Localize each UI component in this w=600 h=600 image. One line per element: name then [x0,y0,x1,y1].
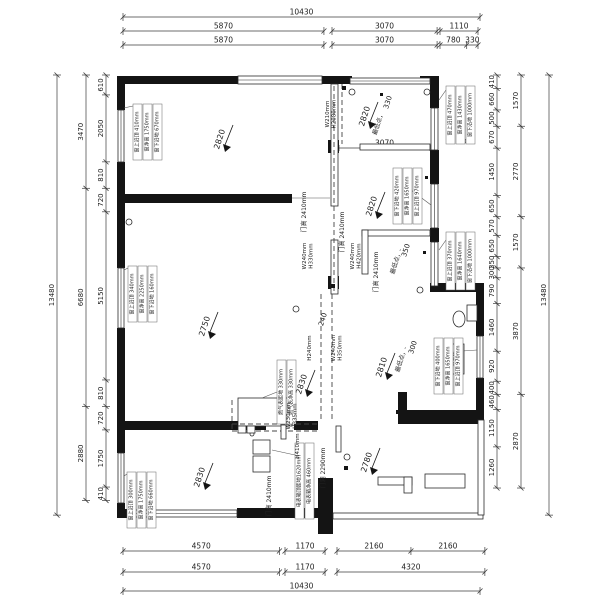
junction-dot-icon [331,284,335,288]
room-height-label: 300 [407,340,419,355]
dimension-label: 460 [488,395,496,408]
leader-line [124,268,128,270]
room-height-label: 最低点，- [393,346,409,373]
meter-box-icon [253,440,270,454]
wall-segment [430,150,439,184]
window [118,268,124,328]
door-height-label: 门高 2410mm [372,251,380,292]
thin-wall [333,513,483,519]
window [431,184,438,228]
window [238,76,322,84]
label-arrow-icon [223,144,231,152]
wall-segment [117,76,125,110]
wall-segment [117,328,125,453]
junction-dot-icon [396,410,400,414]
leader-line [439,90,446,100]
window-anno-left-bottom: 窗净高 1750mm [138,480,145,519]
dimension-label: 410 [97,487,105,500]
window-anno-right-room: 窗上沿顶 970mm [414,175,421,216]
window-anno-right-bottom: 窗上沿顶 970mm [455,345,462,386]
beam-size-note: W240mm [350,243,356,270]
toilet-bowl-icon [453,311,465,327]
beam-size-note: W210mm [325,101,331,128]
dimension-label: 670 [488,131,496,144]
window [431,242,438,286]
dimension-label: 570 [488,219,496,232]
door-height-label: 门高 2410mm [265,475,273,516]
dimension-label: 1450 [488,163,496,181]
beam-size-note: H335mm [293,403,299,428]
window-anno-right-mid: 窗净高 1640mm [457,241,464,280]
dimension-label: 1170 [295,563,314,572]
dimension-label: 1570 [512,92,520,110]
outlet-circle-icon [349,89,355,95]
thin-wall [360,144,430,150]
dimension-label: 650 [488,239,496,252]
window-anno-right-mid: 窗下沿地 1000mm [467,239,474,283]
beam-size-note: H240mm [307,335,313,360]
window-anno-left-mid: 窗净高 2250mm [139,274,146,313]
dimension-label: 4320 [401,563,420,572]
dimension-label: 400 [488,381,496,394]
meter-anno: 电表箱净高 460mm [306,458,313,504]
dimension-label: 330 [465,36,480,45]
label-leader-line [225,125,233,145]
dimension-label: 1750 [97,450,105,468]
dimension-label: 1460 [488,318,496,336]
leader-line [124,474,127,476]
dimension-label: 13480 [48,284,56,306]
dimension-label: 720 [97,411,105,424]
label-arrow-icon [370,467,378,475]
window [477,336,483,378]
dimension-label: 13480 [540,284,548,306]
dimension-label: 720 [97,193,105,206]
wall-segment [398,410,484,424]
label-arrow-icon [203,482,211,490]
dimension-label: 1260 [488,459,496,477]
door-leaf [336,426,341,452]
dimension-label: 810 [97,386,105,399]
dimension-label: 2050 [97,119,105,137]
junction-dot-icon [423,251,426,254]
outlet-circle-icon [424,89,430,95]
junction-dot-icon [344,466,348,470]
meter-box-icon [247,426,255,433]
dimension-label: 300 [488,266,496,279]
label-leader-line [205,463,213,483]
counter-outline [425,474,465,488]
leader-line [262,392,277,398]
floor-plan-svg: 1043058703070111058703070780330457011702… [0,0,600,600]
dimension-label: 5870 [214,36,233,45]
beam-size-note: W240mm [302,243,308,270]
dimension-label: 5150 [97,287,105,305]
dimension-label: 3470 [77,123,85,141]
room-height-label: 330 [382,95,394,110]
window-anno-right-top: 窗净高 1430mm [457,95,464,134]
meter-anno: 电表箱顶距地1620mm [296,455,303,508]
dimension-label: 10430 [290,582,314,591]
dimension-label: 920 [488,360,496,373]
beam-size-note: W230mm [286,403,292,430]
dimension-label: 810 [97,168,105,181]
annotation-layer: 窗上沿顶 410mm窗净高 1750mm窗下沿地 670mm窗上沿顶 340mm… [127,86,475,528]
dimension-label: 3870 [512,322,520,340]
dimension-label: 2880 [77,444,85,462]
door-height-label: 门洞 2290mm [319,447,327,488]
meter-box-icon [238,426,246,433]
thin-wall [362,230,430,236]
floor-plan: 1043058703070111058703070780330457011702… [0,0,600,600]
outlet-circle-icon [293,306,299,312]
wall-segment [124,194,292,203]
dimension-label: 3070 [375,22,394,31]
outlet-circle-icon [344,454,350,460]
label-leader-line [307,370,315,390]
counter-outline [404,477,412,493]
thin-wall [362,230,368,274]
room-height-label: 240 [317,312,329,327]
label-arrow-icon [375,211,383,219]
wall-segment [318,76,352,84]
beam-size-note: H420mm [357,243,363,268]
dimension-label: 2160 [438,542,457,551]
label-leader-line [372,448,380,468]
window-anno-left-top: 窗上沿顶 410mm [134,111,141,152]
window-anno-right-bottom: 窗净高 1650mm [445,346,452,385]
junction-dot-icon [342,86,346,90]
dimension-label: 1570 [512,233,520,251]
junction-dot-icon [425,176,428,179]
label-arrow-icon [305,389,313,397]
dimension-label: 2770 [512,163,520,181]
wall-segment [430,228,439,242]
door-height-label: 门高 2410mm [300,191,308,232]
dimension-label: 4570 [192,563,211,572]
window-anno-right-top: 窗上沿顶 470mm [447,94,454,135]
wall-segment [430,76,439,108]
dimension-label: 660 [488,92,496,105]
window-anno-right-room: 窗下沿地 420mm [394,175,401,216]
door-height-label: 门高 2410mm [338,211,346,252]
gas-anno: 燃气表距地 330mm [278,369,285,415]
beam-size-note: H2080mm [332,100,338,129]
toilet-tank-icon [467,305,477,321]
dimension-label: 790 [488,284,496,297]
dimension-label: 2160 [364,542,383,551]
wall-segment [398,392,407,412]
window-anno-right-mid: 窗上沿顶 370mm [447,240,454,281]
window [118,110,124,162]
room-height-label: 最低点，- [388,248,404,275]
wall-segment [120,76,240,84]
window [118,453,124,503]
dimension-label: 410 [488,75,496,88]
dimension-label: 780 [446,36,461,45]
leader-line [439,240,446,250]
dimension-label: 5870 [214,22,233,31]
window-anno-left-mid: 窗上沿顶 340mm [129,273,136,314]
beam-size-note: H330mm [309,243,315,268]
dimension-label: 1150 [488,419,496,437]
window-anno-right-top: 窗下沿地 1000mm [467,93,474,137]
window-anno-left-mid: 窗下沿地 160mm [149,273,156,314]
meter-box-icon [253,456,270,472]
window-anno-left-top: 窗净高 1750mm [144,112,151,151]
dimension-label: 10430 [290,8,314,17]
label-arrow-icon [208,331,216,339]
dimension-label: 1170 [295,542,314,551]
dimension-label: 1110 [449,22,468,31]
dimension-label: 6680 [77,288,85,306]
dimension-label: 2870 [512,432,520,450]
leader-line [124,106,133,108]
window [350,78,430,84]
wall-segment [117,162,125,268]
beam-size-note: H410mm [295,433,301,458]
beam-size-note: H350mm [338,335,344,360]
thin-wall [478,420,484,515]
dimension-label: 4570 [192,542,211,551]
dimension-label: 3070 [375,36,394,45]
dimension-label: 610 [97,78,105,91]
label-leader-line [377,192,385,212]
dimension-label: 500 [488,111,496,124]
outlet-circle-icon [417,287,423,293]
window-anno-right-bottom: 窗下沿地 400mm [435,345,442,386]
dimension-label: 650 [488,199,496,212]
window-anno-right-room: 窗净高 1650mm [404,176,411,215]
beam-size-note: W240mm [331,335,337,362]
junction-dot-icon [380,93,383,96]
label-leader-line [210,312,218,332]
outlet-circle-icon [126,219,132,225]
leader-line [272,450,295,455]
label-arrow-icon [385,372,393,380]
window-anno-left-bottom: 窗下沿地 660mm [148,479,155,520]
window-anno-left-bottom: 窗上沿顶 300mm [128,479,135,520]
wall-segment [476,378,484,412]
window [431,108,438,150]
window-anno-left-top: 窗下沿地 670mm [154,111,161,152]
